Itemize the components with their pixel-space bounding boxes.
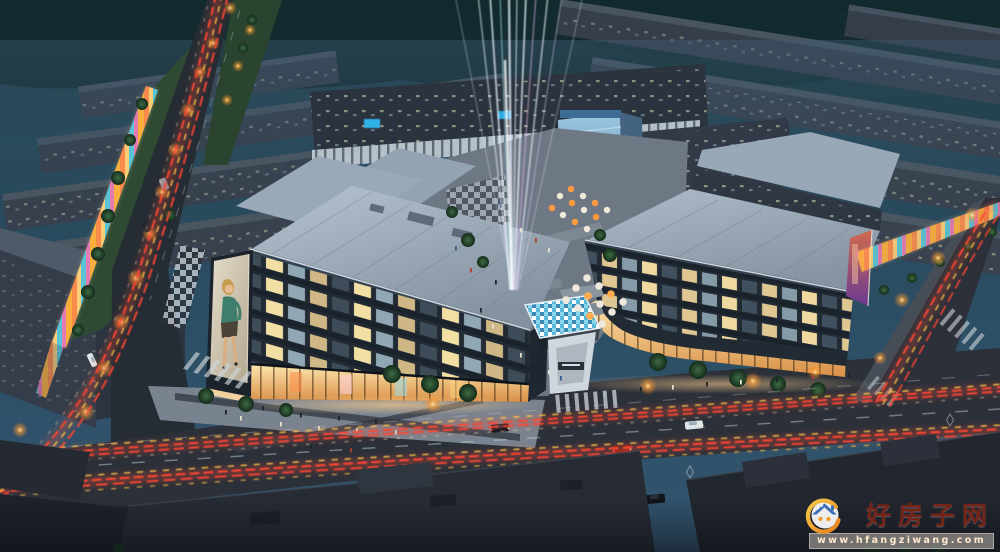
house-logo-icon — [804, 496, 846, 538]
watermark: 好房子网 www.hfangziwang.com — [804, 496, 994, 549]
watermark-site-name: 好房子网 — [866, 496, 994, 532]
night-aerial-rendering — [0, 0, 1000, 552]
rendering-canvas: 好房子网 www.hfangziwang.com — [0, 0, 1000, 552]
blue-sign — [364, 119, 380, 128]
